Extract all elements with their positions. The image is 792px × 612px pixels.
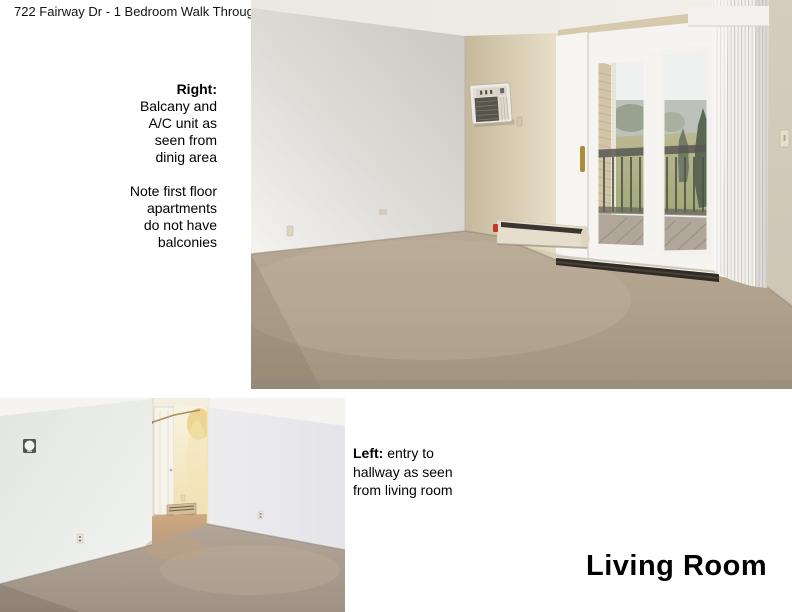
left-wall xyxy=(251,8,465,254)
ac-unit xyxy=(470,83,515,128)
heater-red-valve xyxy=(493,224,498,232)
hallway-heater xyxy=(167,503,196,516)
note-line: dinig area xyxy=(117,149,217,166)
photo-balcony-view xyxy=(251,0,792,389)
left-photo-note: Left: entry to hallway as seen from livi… xyxy=(353,444,475,500)
wall-outlet xyxy=(517,117,522,126)
balcony-photo-canvas xyxy=(251,0,792,389)
thermostat xyxy=(23,439,36,453)
note-line: apartments xyxy=(117,200,217,217)
hallway-opening xyxy=(147,398,211,548)
door-mullion xyxy=(647,50,662,254)
document-title: 722 Fairway Dr - 1 Bedroom Walk Through … xyxy=(14,4,269,19)
note-line: balconies xyxy=(117,234,217,251)
note-line xyxy=(117,166,217,183)
section-title: Living Room xyxy=(586,550,767,583)
wall-outlet xyxy=(379,209,387,215)
hallway-photo-canvas xyxy=(0,398,345,612)
photo-hallway-view xyxy=(0,398,345,612)
note-line: Balcany and xyxy=(117,98,217,115)
wall-outlet xyxy=(181,495,185,501)
door-knob xyxy=(170,469,173,472)
note-label: Left: xyxy=(353,445,383,461)
note-line: do not have xyxy=(117,217,217,234)
wall-outlet xyxy=(77,534,83,543)
note-line: Right: xyxy=(117,81,217,98)
note-line: Note first floor xyxy=(117,183,217,200)
wall-outlet xyxy=(287,226,293,236)
note-line: A/C unit as xyxy=(117,115,217,132)
wall-outlet xyxy=(258,511,263,519)
blinds-valance xyxy=(688,6,769,26)
door-handle xyxy=(580,146,585,172)
right-photo-note: Right: Balcany and A/C unit as seen from… xyxy=(117,81,217,251)
hallway-door xyxy=(154,407,174,516)
note-line: seen from xyxy=(117,132,217,149)
